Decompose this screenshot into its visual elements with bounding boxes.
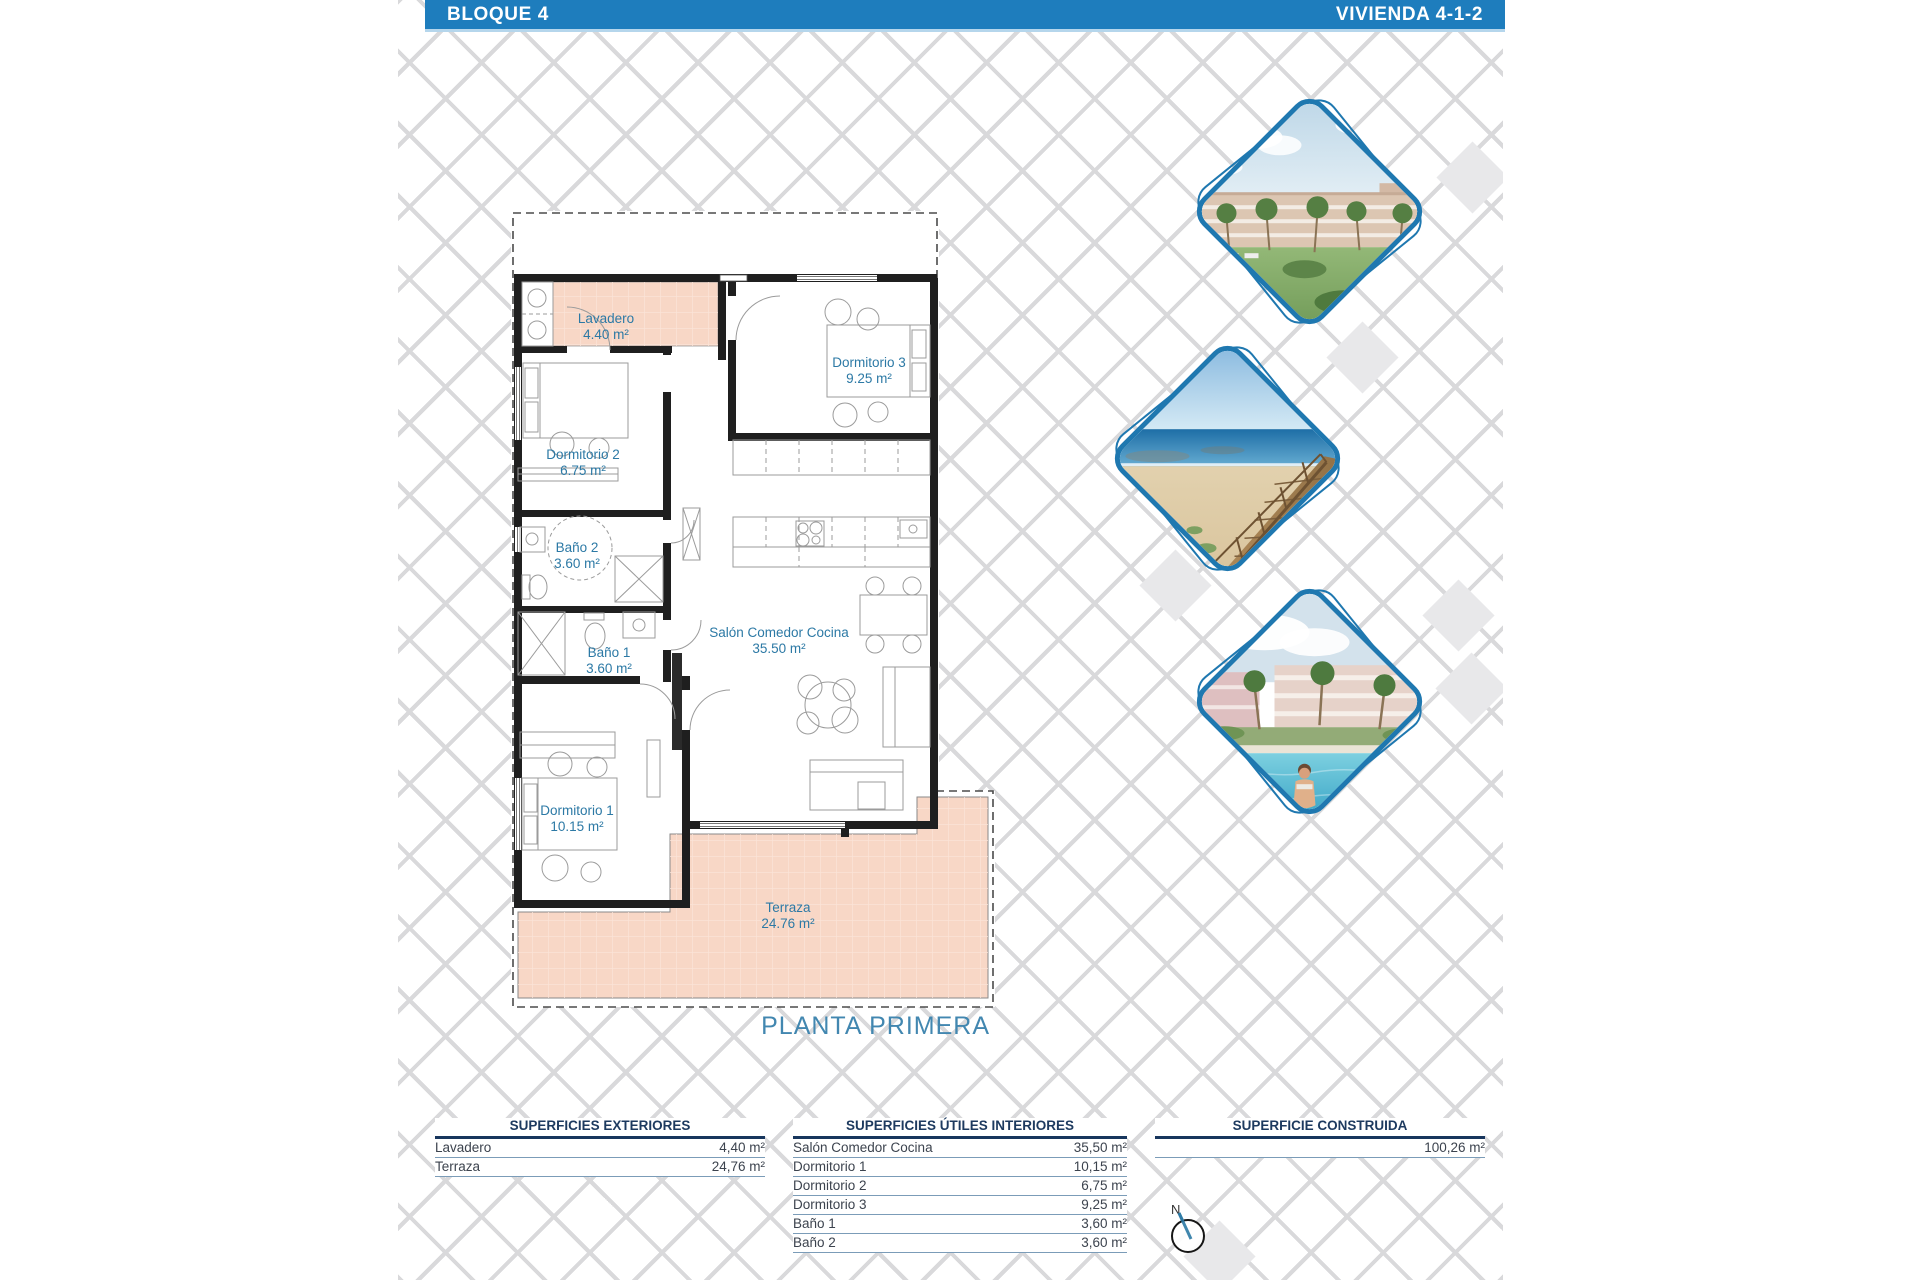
room-area-dormitorio1: 10.15 m²	[550, 819, 604, 834]
table-row: Dormitorio 3 9,25 m²	[793, 1196, 1127, 1215]
room-area-dormitorio3: 9.25 m²	[846, 371, 892, 386]
lattice-shaded-cell	[1422, 579, 1494, 651]
row-label: Salón Comedor Cocina	[793, 1139, 933, 1157]
room-label-terraza: Terraza	[765, 900, 811, 915]
row-value: 100,26 m²	[1424, 1139, 1485, 1157]
row-label: Lavadero	[435, 1139, 491, 1157]
resort-photo	[1189, 91, 1431, 333]
table-row: Baño 2 3,60 m²	[793, 1234, 1127, 1253]
room-label-dormitorio3: Dormitorio 3	[832, 355, 906, 370]
table-row: Salón Comedor Cocina 35,50 m²	[793, 1139, 1127, 1158]
table-title: SUPERFICIES ÚTILES INTERIORES	[793, 1118, 1127, 1139]
table-superficie-construida: SUPERFICIE CONSTRUIDA 100,26 m²	[1155, 1118, 1485, 1158]
row-value: 3,60 m²	[1081, 1215, 1127, 1233]
diamond-frame	[1107, 338, 1349, 580]
room-area-bano1: 3.60 m²	[586, 661, 632, 676]
row-value: 6,75 m²	[1081, 1177, 1127, 1195]
row-value: 4,40 m²	[719, 1139, 765, 1157]
row-label: Baño 2	[793, 1234, 836, 1252]
lattice-shaded-cell	[1435, 652, 1503, 724]
table-row: Dormitorio 2 6,75 m²	[793, 1177, 1127, 1196]
unit-title: VIVIENDA 4-1-2	[1336, 4, 1483, 26]
table-title: SUPERFICIE CONSTRUIDA	[1155, 1118, 1485, 1139]
room-area-bano2: 3.60 m²	[554, 556, 600, 571]
room-label-dormitorio2: Dormitorio 2	[546, 447, 620, 462]
row-value: 3,60 m²	[1081, 1234, 1127, 1252]
room-area-dormitorio2: 6.75 m²	[560, 463, 606, 478]
row-label: Terraza	[435, 1158, 480, 1176]
row-value: 35,50 m²	[1074, 1139, 1127, 1157]
table-row: 100,26 m²	[1155, 1139, 1485, 1158]
room-label-bano1: Baño 1	[588, 645, 631, 660]
beach-photo	[1107, 338, 1349, 580]
plan-sheet: BLOQUE 4 VIVIENDA 4-1-2	[0, 0, 1920, 1280]
photo-diamond-resort	[1224, 126, 1395, 297]
diamond-frame	[1189, 581, 1431, 823]
block-title: BLOQUE 4	[447, 4, 549, 26]
table-title: SUPERFICIES EXTERIORES	[435, 1118, 765, 1139]
room-label-salon: Salón Comedor Cocina	[709, 625, 849, 640]
photo-diamond-pool	[1224, 616, 1395, 787]
room-label-bano2: Baño 2	[556, 540, 599, 555]
room-area-terraza: 24.76 m²	[761, 916, 815, 931]
row-label: Dormitorio 2	[793, 1177, 867, 1195]
row-label: Dormitorio 1	[793, 1158, 867, 1176]
lattice-shaded-cell	[1436, 141, 1503, 213]
row-label: Dormitorio 3	[793, 1196, 867, 1214]
row-label: Baño 1	[793, 1215, 836, 1233]
table-row: Lavadero 4,40 m²	[435, 1139, 765, 1158]
photo-diamond-beach	[1142, 373, 1313, 544]
table-superficies-exteriores: SUPERFICIES EXTERIORES Lavadero 4,40 m² …	[435, 1118, 765, 1177]
pool-photo	[1189, 581, 1431, 823]
diamond-frame	[1189, 91, 1431, 333]
floor-title: PLANTA PRIMERA	[700, 1012, 990, 1041]
room-area-salon: 35.50 m²	[752, 641, 806, 656]
room-area-lavadero: 4.40 m²	[583, 327, 629, 342]
floor-plan: Lavadero 4.40 m² Dormitorio 3 9.25 m² Do…	[500, 200, 1060, 1060]
room-label-dormitorio1: Dormitorio 1	[540, 803, 614, 818]
table-row: Baño 1 3,60 m²	[793, 1215, 1127, 1234]
row-value: 24,76 m²	[712, 1158, 765, 1176]
row-value: 9,25 m²	[1081, 1196, 1127, 1214]
title-bar: BLOQUE 4 VIVIENDA 4-1-2	[425, 0, 1505, 32]
lattice-shaded-cell	[1326, 321, 1398, 393]
row-value: 10,15 m²	[1074, 1158, 1127, 1176]
compass: N	[1158, 1196, 1222, 1260]
table-row: Dormitorio 1 10,15 m²	[793, 1158, 1127, 1177]
room-label-lavadero: Lavadero	[578, 311, 634, 326]
table-row: Terraza 24,76 m²	[435, 1158, 765, 1177]
table-superficies-utiles-interiores: SUPERFICIES ÚTILES INTERIORES Salón Come…	[793, 1118, 1127, 1253]
